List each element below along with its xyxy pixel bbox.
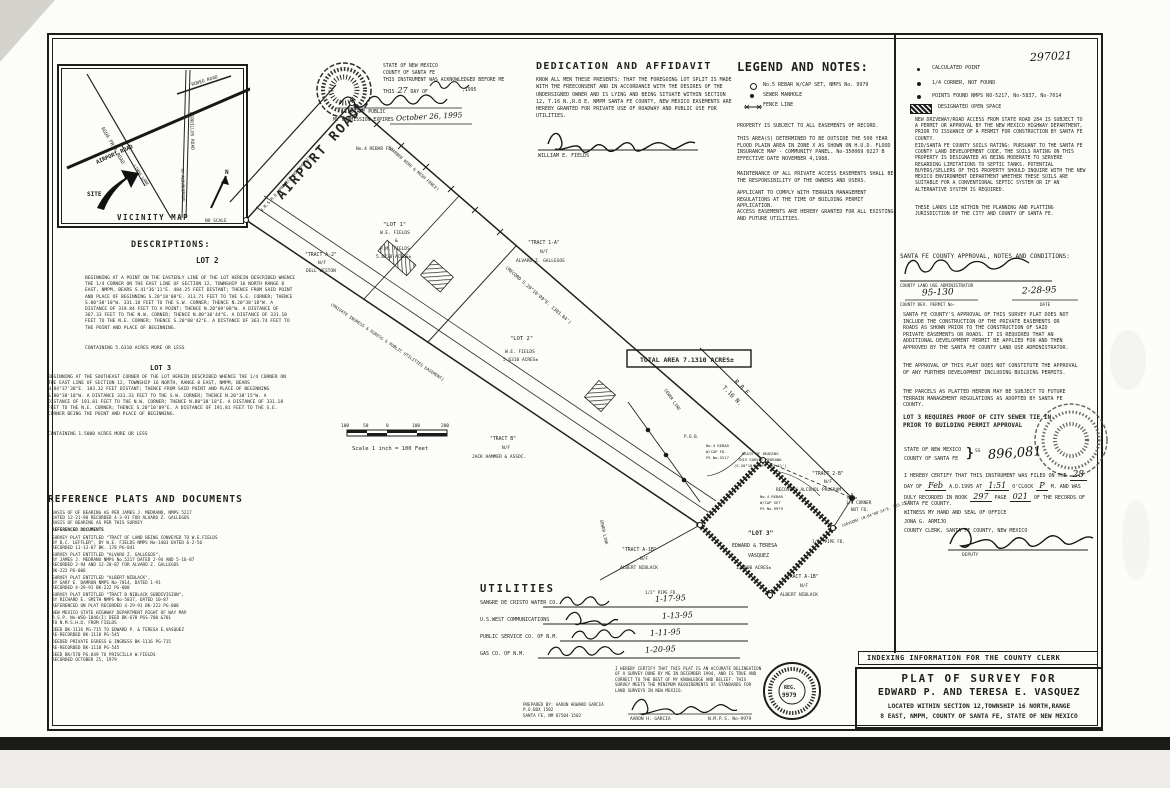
scanned-plat-document: AGUA FRIA ROAD AIRPORT ROAD RODEO ROAD C… bbox=[0, 0, 1170, 788]
recording-line-1: I HEREBY CERTIFY THAT THIS INSTRUMENT WA… bbox=[904, 470, 1087, 482]
recorder-stamp-number: 297021 bbox=[1030, 49, 1073, 65]
svg-text:&: & bbox=[395, 238, 398, 244]
lot2-title: LOT 2 bbox=[196, 256, 219, 266]
utility-signature-gas bbox=[548, 647, 624, 656]
label-lot2: "LOT 2" bbox=[510, 336, 533, 342]
svg-text:100: 100 bbox=[412, 423, 420, 429]
approval-para-3: THE PARCELS AS PLATTED HEREON MAY BE SUB… bbox=[903, 389, 1071, 409]
label-lot1: "LOT 1" bbox=[383, 222, 406, 228]
utilities-heading: UTILITIES bbox=[480, 583, 555, 597]
calculated-point-symbol bbox=[917, 68, 920, 71]
svg-text:W.E. FIELDS: W.E. FIELDS bbox=[380, 230, 410, 236]
legend-right-item-4: DESIGNATED OPEN SPACE bbox=[938, 104, 1001, 111]
lot3-acreage: CONTAINING 1.5000 ACRES MORE OR LESS bbox=[48, 432, 148, 438]
permit-number: 95-130 bbox=[922, 287, 954, 300]
notary-ack: THIS INSTRUMENT WAS ACKNOWLEDGED BEFORE … bbox=[383, 78, 504, 84]
svg-text:N/F: N/F bbox=[502, 445, 510, 451]
recording-county: COUNTY OF SANTA FE bbox=[904, 456, 958, 463]
surveyor-certification: I HEREBY CERTIFY THAT THIS PLAT IS AN AC… bbox=[615, 666, 763, 693]
reference-item: NEW MEXICO STATE HIGHWAY DEPARTMENT RIGH… bbox=[52, 611, 302, 626]
label-tract-2b: "TRACT 2-B" bbox=[812, 471, 844, 477]
svg-text:50: 50 bbox=[363, 423, 369, 429]
scale-tick-100l: 100 bbox=[341, 423, 349, 429]
filed-ampm: P bbox=[1036, 481, 1047, 491]
label-pob: P.O.B. bbox=[684, 434, 699, 439]
label-pipe-found-right: 1/2" PIPE FD. bbox=[812, 539, 845, 544]
plat-title-line4: 8 EAST, NMPM, COUNTY OF SANTA FE, STATE … bbox=[857, 713, 1101, 721]
filed-day: 28 bbox=[1070, 470, 1087, 481]
page-number: 021 bbox=[1010, 492, 1031, 502]
quarter-corner-symbol bbox=[917, 82, 921, 86]
svg-text:200: 200 bbox=[441, 423, 449, 429]
notary-day-handwritten: 27 bbox=[397, 86, 407, 95]
svg-text:PS No-9979: PS No-9979 bbox=[760, 506, 784, 511]
plat-title-line3: LOCATED WITHIN SECTION 12,TOWNSHIP 16 NO… bbox=[857, 703, 1101, 711]
recording-state: STATE OF NEW MEXICO bbox=[904, 447, 961, 454]
approval-date-label: DATE bbox=[1040, 302, 1050, 307]
fence-line-symbol bbox=[744, 104, 762, 110]
plat-sheet: AGUA FRIA ROAD AIRPORT ROAD RODEO ROAD C… bbox=[0, 0, 1170, 737]
label-lot3: "LOT 3" bbox=[748, 530, 773, 537]
deputy-label: DEPUTY bbox=[962, 553, 978, 559]
label-sewer-line-2: SEWER LINE bbox=[599, 519, 609, 545]
surveyor-seal-icon bbox=[764, 663, 820, 719]
svg-text:W/CAP FD.: W/CAP FD. bbox=[706, 449, 727, 454]
utility-signature-pnm bbox=[572, 630, 635, 639]
references-list: BASIS OF OF BEARING AS PER JAMES J. MEDR… bbox=[52, 511, 302, 663]
book-number: 297 bbox=[970, 492, 991, 502]
recording-line-4: SANTA FE COUNTY. bbox=[904, 501, 952, 508]
utility-signature-water bbox=[560, 597, 609, 605]
reference-item: SURVEY PLAT ENTITLED "ALBERT NIBLACK", B… bbox=[52, 576, 302, 591]
scan-edge-band bbox=[0, 737, 1170, 750]
reference-item: BASIS OF OF BEARING AS PER JAMES J. MEDR… bbox=[52, 511, 302, 526]
scale-caption: Scale 1 inch = 100 Feet bbox=[352, 446, 428, 452]
svg-text:N/F: N/F bbox=[318, 260, 326, 266]
svg-text:W/CAP SET: W/CAP SET bbox=[760, 500, 781, 505]
svg-text:ALBERT NIBLACK: ALBERT NIBLACK bbox=[620, 565, 658, 571]
svg-text:DELL WESTON: DELL WESTON bbox=[306, 268, 336, 274]
title-block-box: PLAT OF SURVEY FOR EDWARD P. AND TERESA … bbox=[855, 667, 1103, 729]
legend-right-item-1: CALCULATED POINT bbox=[932, 65, 980, 72]
approval-para-2: THE APPROVAL OF THIS PLAT DOES NOT CONST… bbox=[903, 363, 1081, 376]
svg-text:5.6238 ACRES±: 5.6238 ACRES± bbox=[376, 254, 412, 260]
recording-ss: SS bbox=[975, 449, 980, 455]
note-driveway-access: NEW DRIVEWAY/ROAD ACCESS FROM STATE ROAD… bbox=[915, 118, 1083, 143]
svg-text:1.5000 ACRES±: 1.5000 ACRES± bbox=[736, 565, 772, 571]
notary-date-line: THIS 27 DAY OF bbox=[383, 86, 428, 96]
lot3-sewer-note: LOT 3 REQUIRES PROOF OF CITY SEWER TIE I… bbox=[903, 414, 1053, 430]
svg-text:5.6310 ACRES±: 5.6310 ACRES± bbox=[503, 357, 539, 363]
utility-signature-uswest bbox=[566, 612, 618, 625]
plat-title-line1: PLAT OF SURVEY FOR bbox=[857, 672, 1101, 686]
utility-name-gas: GAS CO. OF N.M. bbox=[480, 651, 525, 658]
legend-item-fence: FENCE LINE bbox=[763, 102, 793, 109]
reference-item: SURVEY PLAT ENTITLED "TRACT B NIBLACK SU… bbox=[52, 593, 302, 608]
indexing-label: INDEXING INFORMATION FOR THE COUNTY CLER… bbox=[867, 654, 1060, 663]
reference-item: DEEDED PRIVATE EGRESS & INGRESS BK-1116 … bbox=[52, 640, 302, 650]
surveyor-reg: N.M.P.S. No-9979 bbox=[708, 717, 751, 723]
utility-name-uswest: U.S.WEST COMMUNICATIONS bbox=[480, 617, 549, 624]
reference-item: SURVEY PLAT ENTITLED "TRACT OF LAND BEIN… bbox=[52, 536, 302, 551]
permit-label: COUNTY DEV. PERMIT No- bbox=[900, 302, 955, 307]
legend-note-3: MAINTENANCE OF ALL PRIVATE ACCESS EASEME… bbox=[737, 171, 897, 184]
plat-title-line2: EDWARD P. AND TERESA E. VASQUEZ bbox=[857, 686, 1101, 699]
svg-text:ALBERT NIBLACK: ALBERT NIBLACK bbox=[780, 592, 818, 598]
label-tract-a1b-right: "TRACT A-1B" bbox=[784, 574, 819, 580]
legend-right-item-2: 1/4 CORNER, NOT FOUND bbox=[932, 80, 995, 87]
dedication-heading: DEDICATION AND AFFIDAVIT bbox=[536, 60, 712, 73]
svg-text:N/F: N/F bbox=[540, 249, 548, 255]
label-tract-a1b-left: "TRACT A-1B" bbox=[622, 547, 657, 553]
approval-date: 2-28-95 bbox=[1022, 285, 1057, 298]
brace: } bbox=[966, 446, 974, 463]
label-rebar-5217: No.4 REBAR bbox=[706, 443, 730, 448]
svg-text:(S.20°18'09"E. 403.41'): (S.20°18'09"E. 403.41') bbox=[734, 463, 787, 468]
utility-date-uswest: 1-13-95 bbox=[662, 610, 693, 622]
notary-public-label: NOTARY PUBLIC bbox=[348, 110, 386, 116]
svg-text:N/F: N/F bbox=[824, 479, 832, 485]
reference-item: SURVEY PLAT ENTITLED "ALVARO Z. GALLEGOS… bbox=[52, 553, 302, 574]
svg-text:VASQUEZ: VASQUEZ bbox=[748, 553, 769, 559]
label-rebar-found: No.4 REBAR FD. bbox=[356, 146, 394, 152]
svg-text:RECOVERY ALCOHOL PROGRAM: RECOVERY ALCOHOL PROGRAM bbox=[776, 487, 841, 493]
surveyor-seal-number: 9979 bbox=[782, 692, 797, 699]
clerk-title: COUNTY CLERK, SANTA FE COUNTY, NEW MEXIC… bbox=[904, 528, 1027, 535]
notary-county: COUNTY OF SANTA FE bbox=[383, 71, 435, 77]
dedication-signer-name: WILLIAM E. FIELDS bbox=[538, 153, 589, 160]
scan-margin-bottom bbox=[0, 750, 1170, 788]
legend-note-1: PROPERTY IS SUBJECT TO ALL EASEMENTS OF … bbox=[737, 123, 897, 130]
sewer-manhole-symbol bbox=[750, 94, 754, 98]
svg-text:PS No-5217: PS No-5217 bbox=[706, 455, 729, 460]
prepared-by: PREPARED BY: AARON HOWARD GARCIA P.O.BOX… bbox=[523, 702, 604, 718]
surveyor-seal-reg: REG. bbox=[784, 685, 796, 691]
svg-text:EDWARD & TERESA: EDWARD & TERESA bbox=[732, 543, 777, 549]
legend-item-rebar: No.5 REBAR W/CAP SET, NMPS No. 9979 bbox=[763, 82, 868, 89]
utility-name-pnm: PUBLIC SERVICE CO. OF N.M. bbox=[480, 634, 558, 641]
dedication-signature bbox=[548, 133, 695, 152]
label-tract-1a: "TRACT 1-A" bbox=[528, 240, 560, 246]
label-tract-b: "TRACT B" bbox=[490, 436, 516, 442]
label-tract-a2: "TRACT A-2" bbox=[305, 252, 337, 258]
label-basis-of-bearing: BASIS OF BEARING bbox=[742, 451, 779, 456]
approval-para-1: SANTA FE COUNTY'S APPROVAL OF THIS SURVE… bbox=[903, 312, 1071, 351]
reference-item: DEED BK-1116 PG-715 TO EDWARD P. & TERES… bbox=[52, 628, 302, 638]
svg-text:0: 0 bbox=[386, 423, 389, 429]
svg-text:THIS SURVEY MEDRANO: THIS SURVEY MEDRANO bbox=[738, 457, 782, 462]
label-record-bearing: (RECORD S.20°10'09"E. 1303.84') bbox=[504, 265, 573, 326]
label-total-area: TOTAL AREA 7.1310 ACRES± bbox=[640, 356, 734, 364]
svg-text:JACK HAMMER & ASSOC.: JACK HAMMER & ASSOC. bbox=[472, 454, 526, 460]
note-platting-jurisdiction: THESE LANDS LIE WITHIN THE PLANNING AND … bbox=[915, 206, 1083, 218]
utility-date-pnm: 1-11-95 bbox=[650, 627, 681, 639]
legend-item-manhole: SEWER MANHOLE bbox=[763, 92, 802, 99]
rebar-set-symbol bbox=[750, 83, 757, 90]
descriptions-heading: DESCRIPTIONS: bbox=[131, 240, 211, 251]
filed-time: 1:51 bbox=[985, 481, 1009, 491]
reference-item: DEED BK/570 PG.849 TO PRISCILLA W.FIELDS… bbox=[52, 653, 302, 663]
utility-name-water: SANGRE DE CRISTO WATER CO. bbox=[480, 600, 558, 607]
commission-expires-label: MY COMMISSION EXPIRES bbox=[333, 118, 394, 124]
recording-line-2: DAY OF Feb A.D.1995 AT 1:51 O'CLOCK P M.… bbox=[904, 481, 1081, 491]
notary-state: STATE OF NEW MEXICO bbox=[383, 64, 438, 70]
label-nmshd-project: N.M.S.H.D. PROJECT NO-1046(I) bbox=[259, 155, 312, 213]
witness-line: WITNESS MY HAND AND SEAL OF OFFICE bbox=[904, 510, 1006, 517]
legend-right-item-3: POINTS FOUND NMPS NO-5217, No-5837, No-7… bbox=[932, 93, 1061, 100]
filed-month: Feb bbox=[925, 481, 946, 491]
svg-text:N/F: N/F bbox=[640, 556, 648, 562]
label-rebar-set: No.4 REBAR bbox=[760, 494, 784, 499]
notary-year: ,1995 bbox=[462, 88, 476, 94]
svg-text:P.M. FIELDS: P.M. FIELDS bbox=[380, 246, 410, 252]
lot2-description: BEGINNING AT A POINT ON THE EASTERLY LIN… bbox=[85, 276, 297, 332]
surveyor-signature bbox=[632, 699, 737, 714]
surveyor-name: AARON H. GARCIA bbox=[630, 717, 671, 723]
references-heading: REFERENCE PLATS AND DOCUMENTS bbox=[48, 494, 243, 506]
label-sewer-line-1: SEWER LINE bbox=[663, 388, 682, 412]
legend-note-2: THIS AREA(S) DETERMINED TO BE OUTSIDE TH… bbox=[737, 136, 897, 162]
points-found-symbol bbox=[917, 95, 921, 99]
legend-heading: LEGEND AND NOTES: bbox=[737, 60, 868, 76]
reference-item: REFERENCED DOCUMENTS bbox=[52, 528, 302, 533]
label-fence-note: (BARBED WIRE & MESH FENCE) bbox=[387, 145, 440, 192]
svg-text:W.E. FIELDS: W.E. FIELDS bbox=[505, 349, 535, 355]
notary-seal-icon bbox=[317, 63, 371, 117]
clerk-name: JONA G. ARMIJO bbox=[904, 519, 946, 526]
label-quarter-corner: 1/4 CORNER bbox=[846, 500, 872, 505]
legend-note-5: ACCESS EASEMENTS ARE HEREBY GRANTED FOR … bbox=[737, 209, 897, 222]
svg-text:N/F: N/F bbox=[800, 583, 808, 589]
approval-heading: SANTA FE COUNTY APPROVAL, NOTES AND COND… bbox=[900, 253, 1070, 261]
svg-text:ALVARO Z. GALLEGOS: ALVARO Z. GALLEGOS bbox=[516, 258, 565, 264]
utility-date-water: 1-17-95 bbox=[655, 593, 686, 605]
utility-date-gas: 1-20-95 bbox=[645, 644, 676, 656]
lot2-acreage: CONTAINING 5.6310 ACRES MORE OR LESS bbox=[85, 346, 185, 352]
indexing-box: INDEXING INFORMATION FOR THE COUNTY CLER… bbox=[858, 651, 1098, 665]
svg-text:NOT FD.: NOT FD. bbox=[851, 507, 869, 512]
legend-note-4: APPLICANT TO COMPLY WITH TERRAIN MANAGEM… bbox=[737, 190, 897, 210]
open-space-swatch bbox=[910, 104, 932, 114]
lot3-description: BEGINNING AT THE SOUTHEAST CORNER OF THE… bbox=[48, 375, 286, 418]
dedication-body: KNOW ALL MEN THESE PRESENTS: THAT THE FO… bbox=[536, 77, 734, 121]
note-soils-rating: EID/SANTA FE COUNTY SOILS RATING: PURSUA… bbox=[915, 144, 1087, 194]
lot3-title: LOT 3 bbox=[150, 364, 171, 373]
